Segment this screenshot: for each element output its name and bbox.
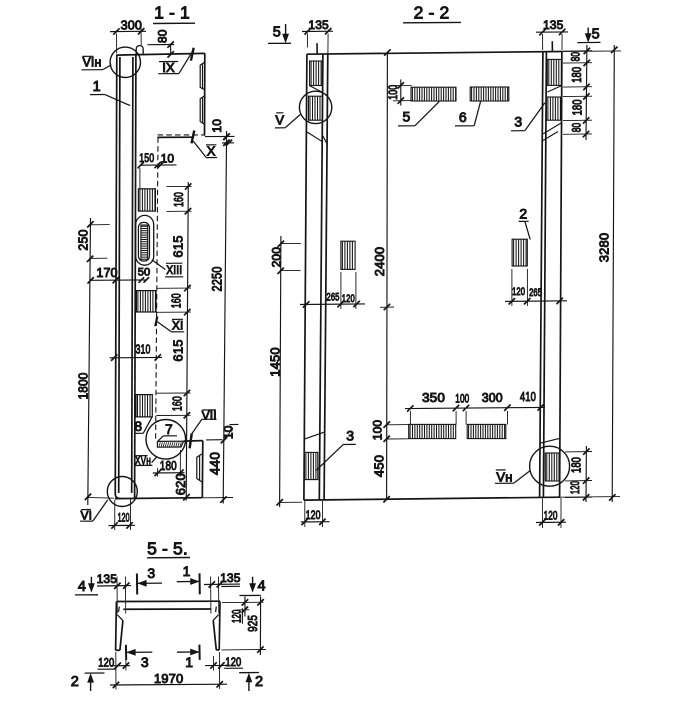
svg-text:1800: 1800 xyxy=(75,373,90,400)
svg-text:80: 80 xyxy=(569,123,583,133)
svg-text:3: 3 xyxy=(147,565,155,581)
svg-text:2 - 2: 2 - 2 xyxy=(414,3,450,23)
svg-text:10: 10 xyxy=(222,425,236,439)
svg-text:5: 5 xyxy=(592,27,600,43)
svg-text:615: 615 xyxy=(171,339,186,361)
svg-text:1: 1 xyxy=(183,563,191,579)
svg-text:120: 120 xyxy=(568,481,582,494)
svg-text:4: 4 xyxy=(257,578,265,594)
svg-text:135: 135 xyxy=(543,18,564,32)
svg-text:925: 925 xyxy=(245,615,260,632)
svg-text:180: 180 xyxy=(571,99,585,115)
svg-text:2: 2 xyxy=(71,674,79,690)
svg-text:VI: VI xyxy=(80,508,92,522)
svg-text:100: 100 xyxy=(371,420,385,441)
svg-text:200: 200 xyxy=(270,247,284,268)
svg-text:2400: 2400 xyxy=(372,247,387,277)
svg-text:V: V xyxy=(275,113,284,128)
svg-text:7: 7 xyxy=(165,422,173,437)
svg-text:310: 310 xyxy=(136,342,151,356)
svg-text:410: 410 xyxy=(520,390,536,404)
svg-text:Vн: Vн xyxy=(496,470,512,485)
svg-text:2250: 2250 xyxy=(210,267,225,292)
svg-text:VII: VII xyxy=(202,408,217,422)
svg-text:265: 265 xyxy=(327,292,340,304)
svg-text:170: 170 xyxy=(96,266,117,280)
svg-text:120: 120 xyxy=(118,510,130,524)
svg-text:1450: 1450 xyxy=(268,347,283,377)
svg-text:5: 5 xyxy=(273,24,281,40)
svg-text:300: 300 xyxy=(482,391,503,405)
svg-text:120: 120 xyxy=(342,293,355,305)
svg-text:120: 120 xyxy=(230,609,244,623)
svg-text:8: 8 xyxy=(134,419,142,434)
svg-text:265: 265 xyxy=(529,287,542,299)
svg-text:2: 2 xyxy=(255,674,263,690)
svg-text:3280: 3280 xyxy=(597,233,612,263)
svg-text:160: 160 xyxy=(172,192,186,207)
svg-text:3: 3 xyxy=(514,113,522,129)
svg-text:120: 120 xyxy=(98,656,114,670)
svg-text:XIII: XIII xyxy=(166,263,182,277)
svg-text:615: 615 xyxy=(170,235,185,257)
svg-text:3: 3 xyxy=(141,654,149,670)
svg-text:6: 6 xyxy=(459,109,467,125)
svg-text:IX: IX xyxy=(162,60,175,75)
svg-text:180: 180 xyxy=(570,457,584,473)
svg-text:1: 1 xyxy=(185,654,193,670)
svg-text:180: 180 xyxy=(570,67,584,83)
svg-text:3: 3 xyxy=(346,427,354,443)
svg-text:VIн: VIн xyxy=(83,56,102,70)
svg-text:5: 5 xyxy=(403,109,411,125)
svg-text:135: 135 xyxy=(220,571,241,585)
svg-text:250: 250 xyxy=(76,229,90,250)
svg-text:1: 1 xyxy=(93,79,101,95)
svg-text:180: 180 xyxy=(160,459,177,473)
svg-text:2: 2 xyxy=(519,205,527,221)
svg-text:4: 4 xyxy=(78,579,86,595)
svg-text:80: 80 xyxy=(569,52,583,62)
svg-text:100: 100 xyxy=(455,391,469,405)
svg-text:350: 350 xyxy=(422,391,445,405)
svg-text:160: 160 xyxy=(170,396,184,411)
svg-text:X: X xyxy=(207,144,216,159)
svg-text:300: 300 xyxy=(121,19,142,33)
svg-text:450: 450 xyxy=(371,455,386,477)
svg-text:5 - 5.: 5 - 5. xyxy=(147,538,188,558)
svg-text:1 - 1: 1 - 1 xyxy=(154,3,190,23)
svg-text:120: 120 xyxy=(225,655,241,669)
svg-text:120: 120 xyxy=(544,509,558,523)
svg-text:135: 135 xyxy=(308,18,329,32)
svg-text:10: 10 xyxy=(210,119,224,133)
svg-text:150: 150 xyxy=(139,151,154,165)
svg-text:120: 120 xyxy=(512,286,525,298)
svg-text:160: 160 xyxy=(170,293,184,308)
svg-text:80: 80 xyxy=(155,29,169,43)
svg-text:440: 440 xyxy=(207,452,222,475)
svg-text:135: 135 xyxy=(97,572,118,586)
svg-text:XI: XI xyxy=(172,319,184,333)
svg-text:1970: 1970 xyxy=(154,671,184,686)
